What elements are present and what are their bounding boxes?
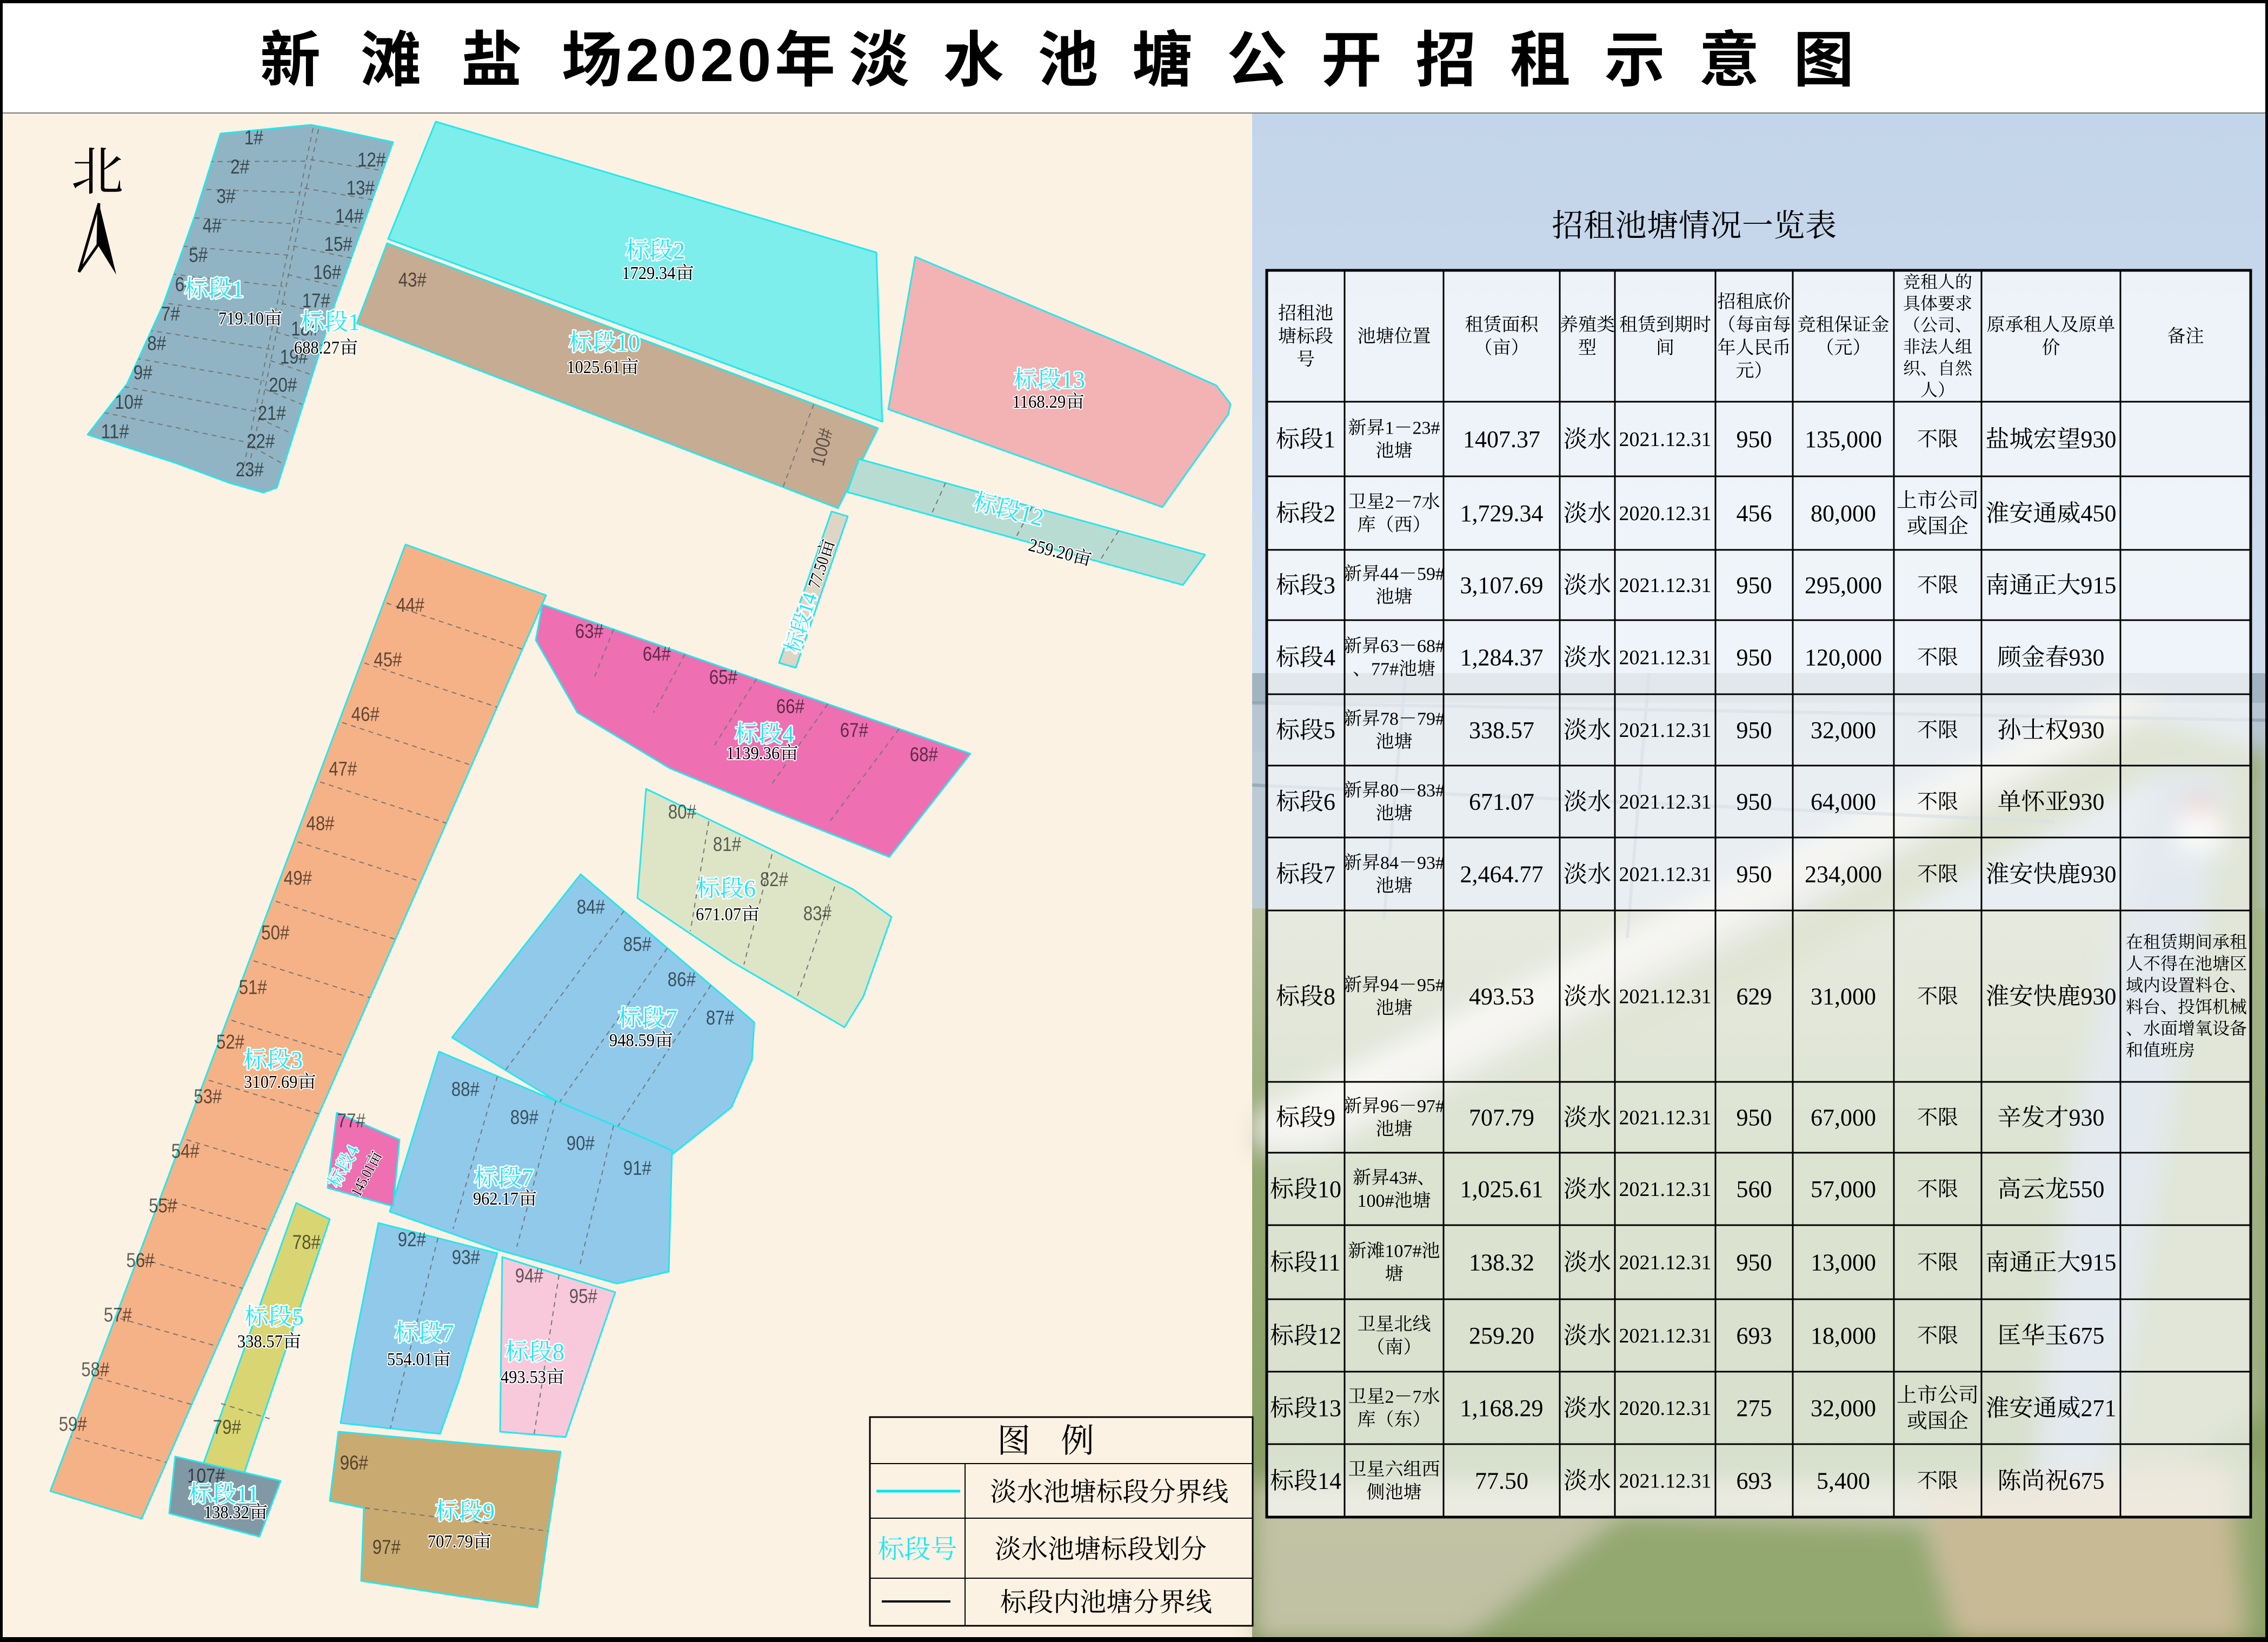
svg-text:2: 2 (1385, 492, 1394, 512)
svg-text:13#: 13# (347, 177, 375, 199)
svg-text:10: 10 (1318, 1176, 1341, 1202)
svg-text:138.32: 138.32 (1469, 1249, 1534, 1276)
svg-text:962.17: 962.17 (473, 1189, 518, 1209)
svg-text:930: 930 (2069, 644, 2105, 671)
svg-text:7: 7 (666, 1005, 677, 1032)
svg-text:32,000: 32,000 (1811, 717, 1876, 743)
svg-text:693: 693 (1737, 1322, 1772, 1349)
svg-text:1729.34: 1729.34 (622, 263, 675, 283)
svg-text:675: 675 (2069, 1322, 2105, 1349)
svg-text:2: 2 (673, 237, 685, 264)
svg-text:56#: 56# (127, 1249, 155, 1271)
svg-text:5#: 5# (189, 244, 208, 266)
svg-text:12#: 12# (357, 149, 385, 171)
svg-text:11: 11 (1318, 1249, 1340, 1276)
svg-text:2020: 2020 (626, 26, 775, 94)
svg-text:22#: 22# (247, 430, 275, 453)
svg-text:2020.12.31: 2020.12.31 (1619, 502, 1712, 525)
svg-text:1: 1 (1385, 418, 1394, 438)
svg-text:560: 560 (1737, 1176, 1772, 1202)
svg-text:4: 4 (1323, 644, 1335, 671)
svg-text:338.57: 338.57 (237, 1332, 283, 1352)
svg-text:107#: 107# (1385, 1241, 1422, 1261)
svg-text:64,000: 64,000 (1811, 789, 1876, 815)
svg-text:54#: 54# (171, 1140, 199, 1162)
svg-text:2021.12.31: 2021.12.31 (1619, 1251, 1712, 1274)
svg-text:48#: 48# (307, 813, 335, 835)
svg-text:93#: 93# (1417, 853, 1445, 873)
svg-text:2021.12.31: 2021.12.31 (1619, 1178, 1712, 1201)
svg-text:4#: 4# (203, 215, 222, 237)
svg-text:96: 96 (1380, 1096, 1399, 1116)
svg-text:78: 78 (1380, 709, 1399, 729)
svg-text:7: 7 (1323, 861, 1335, 888)
svg-text:930: 930 (2069, 789, 2105, 815)
svg-text:271: 271 (2081, 1395, 2117, 1421)
svg-text:338.57: 338.57 (1469, 717, 1534, 743)
svg-text:688.27: 688.27 (294, 338, 340, 358)
svg-text:95#: 95# (1417, 975, 1445, 995)
svg-text:7: 7 (522, 1165, 534, 1191)
svg-text:57,000: 57,000 (1811, 1176, 1876, 1202)
svg-text:31,000: 31,000 (1811, 983, 1876, 1010)
svg-text:82#: 82# (760, 868, 788, 890)
svg-text:79#: 79# (213, 1416, 241, 1438)
svg-text:2021.12.31: 2021.12.31 (1619, 1106, 1712, 1129)
svg-text:10#: 10# (115, 391, 143, 413)
svg-text:68#: 68# (910, 743, 938, 766)
svg-text:2021.12.31: 2021.12.31 (1619, 985, 1712, 1008)
svg-text:1407.37: 1407.37 (1463, 426, 1540, 453)
svg-text:3: 3 (1323, 572, 1335, 599)
svg-text:930: 930 (2081, 426, 2117, 453)
svg-text:7#: 7# (161, 303, 180, 325)
svg-text:1,025.61: 1,025.61 (1460, 1176, 1544, 1202)
svg-text:80,000: 80,000 (1811, 500, 1876, 527)
svg-text:83#: 83# (1417, 781, 1445, 801)
svg-text:675: 675 (2069, 1468, 2105, 1494)
svg-text:16#: 16# (313, 261, 341, 283)
svg-text:948.59: 948.59 (609, 1031, 655, 1051)
svg-text:1#: 1# (244, 127, 263, 149)
svg-text:1: 1 (232, 276, 244, 302)
svg-text:12: 12 (1318, 1322, 1341, 1349)
svg-text:57#: 57# (104, 1304, 132, 1326)
svg-text:63#: 63# (575, 620, 603, 642)
svg-text:554.01: 554.01 (387, 1350, 433, 1370)
svg-text:6: 6 (744, 875, 756, 902)
svg-text:1,168.29: 1,168.29 (1460, 1395, 1544, 1421)
svg-text:96#: 96# (340, 1452, 368, 1474)
svg-text:79#: 79# (1417, 709, 1445, 729)
svg-text:11#: 11# (101, 421, 129, 443)
svg-text:915: 915 (2081, 1249, 2117, 1276)
svg-text:59#: 59# (59, 1413, 87, 1435)
svg-text:77#: 77# (337, 1109, 365, 1132)
svg-text:950: 950 (1737, 426, 1772, 453)
svg-text:7: 7 (1413, 492, 1422, 512)
svg-text:3: 3 (291, 1047, 303, 1073)
svg-text:950: 950 (1737, 644, 1772, 671)
svg-text:1,284.37: 1,284.37 (1460, 644, 1544, 671)
svg-text:693: 693 (1737, 1468, 1772, 1494)
svg-text:2: 2 (1385, 1387, 1394, 1407)
svg-text:550: 550 (2069, 1176, 2105, 1202)
svg-text:68#: 68# (1417, 636, 1445, 656)
svg-text:77.50: 77.50 (1475, 1468, 1528, 1494)
svg-text:234,000: 234,000 (1805, 861, 1882, 888)
svg-text:950: 950 (1737, 717, 1772, 743)
svg-text:5,400: 5,400 (1817, 1468, 1870, 1494)
svg-text:67#: 67# (840, 719, 868, 741)
svg-text:707.79: 707.79 (428, 1532, 473, 1552)
svg-text:915: 915 (2081, 572, 2117, 599)
svg-text:91#: 91# (623, 1157, 651, 1179)
svg-text:89#: 89# (510, 1106, 538, 1128)
svg-text:120,000: 120,000 (1805, 644, 1882, 671)
svg-text:950: 950 (1737, 572, 1772, 599)
svg-text:2021.12.31: 2021.12.31 (1619, 719, 1712, 742)
svg-text:450: 450 (2081, 500, 2117, 527)
svg-text:5: 5 (292, 1304, 304, 1330)
svg-text:259.20: 259.20 (1469, 1322, 1534, 1349)
svg-text:18,000: 18,000 (1811, 1322, 1876, 1349)
svg-text:84: 84 (1380, 853, 1399, 873)
svg-text:3#: 3# (217, 185, 236, 208)
svg-text:44: 44 (1380, 564, 1399, 584)
svg-text:671.07: 671.07 (696, 905, 741, 925)
svg-text:2021.12.31: 2021.12.31 (1619, 1325, 1712, 1347)
svg-text:135,000: 135,000 (1805, 426, 1882, 453)
svg-text:92#: 92# (398, 1228, 426, 1251)
svg-text:8: 8 (553, 1339, 564, 1365)
svg-text:1139.36: 1139.36 (726, 743, 780, 763)
svg-text:930: 930 (2081, 861, 2117, 888)
svg-text:493.53: 493.53 (1469, 983, 1534, 1010)
svg-text:97#: 97# (373, 1536, 401, 1558)
svg-text:1025.61: 1025.61 (567, 357, 620, 377)
svg-text:2021.12.31: 2021.12.31 (1619, 574, 1712, 597)
svg-text:2020.12.31: 2020.12.31 (1619, 1397, 1712, 1420)
svg-text:52#: 52# (216, 1031, 244, 1053)
svg-text:275: 275 (1737, 1395, 1772, 1421)
svg-text:456: 456 (1737, 500, 1772, 527)
svg-text:90#: 90# (567, 1132, 595, 1154)
svg-text:67,000: 67,000 (1811, 1105, 1876, 1131)
svg-text:50#: 50# (261, 922, 289, 944)
svg-text:86#: 86# (668, 968, 696, 990)
svg-text:47#: 47# (329, 758, 357, 780)
svg-text:950: 950 (1737, 861, 1772, 888)
svg-text:2#: 2# (230, 156, 249, 178)
svg-text:46#: 46# (351, 703, 380, 726)
svg-text:93#: 93# (452, 1246, 480, 1268)
svg-text:13: 13 (1061, 367, 1085, 393)
svg-text:7: 7 (1413, 1387, 1422, 1407)
svg-text:6: 6 (1323, 789, 1335, 815)
svg-text:3107.69: 3107.69 (244, 1072, 297, 1092)
svg-text:85#: 85# (623, 933, 651, 955)
svg-text:59#: 59# (1417, 564, 1445, 584)
svg-text:43#: 43# (398, 269, 427, 291)
svg-text:2,464.77: 2,464.77 (1460, 861, 1544, 888)
svg-text:13: 13 (1318, 1395, 1341, 1421)
svg-text:950: 950 (1737, 1249, 1772, 1276)
svg-text:930: 930 (2069, 1105, 2105, 1131)
svg-text:80: 80 (1380, 781, 1399, 801)
svg-text:66#: 66# (776, 695, 804, 717)
svg-text:1: 1 (1323, 426, 1335, 453)
svg-text:719.10: 719.10 (218, 309, 264, 329)
svg-text:43#: 43# (1389, 1168, 1417, 1188)
svg-text:2021.12.31: 2021.12.31 (1619, 1470, 1712, 1492)
svg-text:80#: 80# (668, 801, 696, 823)
svg-text:63: 63 (1380, 636, 1399, 656)
svg-text:930: 930 (2081, 983, 2117, 1010)
svg-text:83#: 83# (803, 902, 832, 925)
svg-text:87#: 87# (706, 1007, 734, 1029)
svg-text:15#: 15# (324, 233, 352, 255)
svg-text:671.07: 671.07 (1469, 789, 1534, 815)
svg-text:9: 9 (1323, 1105, 1335, 1131)
svg-text:100#: 100# (1358, 1191, 1394, 1211)
svg-text:23#: 23# (236, 458, 264, 481)
svg-text:44#: 44# (396, 594, 424, 616)
svg-text:64#: 64# (643, 643, 671, 665)
svg-text:138.32: 138.32 (204, 1503, 249, 1523)
svg-text:5: 5 (1323, 717, 1335, 743)
svg-text:930: 930 (2069, 717, 2105, 743)
svg-text:53#: 53# (194, 1085, 222, 1107)
svg-text:65#: 65# (709, 666, 737, 688)
svg-text:13,000: 13,000 (1811, 1249, 1876, 1276)
svg-text:9#: 9# (134, 362, 152, 384)
svg-text:950: 950 (1737, 1105, 1772, 1131)
svg-text:55#: 55# (149, 1194, 177, 1216)
svg-text:14#: 14# (335, 205, 363, 227)
svg-text:23#: 23# (1413, 418, 1440, 438)
svg-text:81#: 81# (713, 833, 741, 855)
svg-text:629: 629 (1737, 983, 1772, 1010)
svg-text:1,729.34: 1,729.34 (1460, 500, 1544, 527)
svg-text:295,000: 295,000 (1805, 572, 1882, 599)
svg-text:2021.12.31: 2021.12.31 (1619, 646, 1712, 669)
svg-text:58#: 58# (81, 1358, 109, 1380)
svg-text:77#: 77# (1371, 659, 1399, 679)
svg-text:51#: 51# (239, 976, 267, 999)
svg-text:21#: 21# (258, 402, 286, 424)
svg-text:94#: 94# (515, 1265, 543, 1287)
svg-text:17#: 17# (302, 289, 330, 311)
svg-text:32,000: 32,000 (1811, 1395, 1876, 1421)
svg-text:2021.12.31: 2021.12.31 (1619, 428, 1712, 451)
svg-text:7: 7 (442, 1320, 454, 1346)
svg-text:14: 14 (1318, 1468, 1341, 1494)
svg-text:2: 2 (1323, 500, 1335, 527)
svg-text:2021.12.31: 2021.12.31 (1619, 863, 1712, 886)
svg-text:9: 9 (483, 1498, 495, 1525)
svg-text:78#: 78# (292, 1231, 321, 1253)
svg-text:84#: 84# (577, 896, 605, 918)
svg-text:20#: 20# (269, 374, 297, 396)
svg-text:3,107.69: 3,107.69 (1460, 572, 1544, 599)
svg-text:94: 94 (1380, 975, 1399, 995)
svg-text:10: 10 (616, 329, 640, 356)
svg-text:49#: 49# (284, 867, 312, 889)
svg-text:707.79: 707.79 (1469, 1105, 1534, 1131)
svg-text:88#: 88# (451, 1078, 480, 1100)
svg-text:493.53: 493.53 (501, 1367, 546, 1387)
svg-text:2021.12.31: 2021.12.31 (1619, 790, 1712, 813)
svg-text:8#: 8# (147, 332, 166, 354)
svg-text:1168.29: 1168.29 (1012, 392, 1066, 412)
svg-text:950: 950 (1737, 789, 1772, 815)
svg-text:97#: 97# (1417, 1096, 1445, 1116)
svg-text:45#: 45# (374, 649, 402, 671)
svg-text:8: 8 (1323, 983, 1335, 1010)
svg-text:95#: 95# (569, 1285, 597, 1307)
